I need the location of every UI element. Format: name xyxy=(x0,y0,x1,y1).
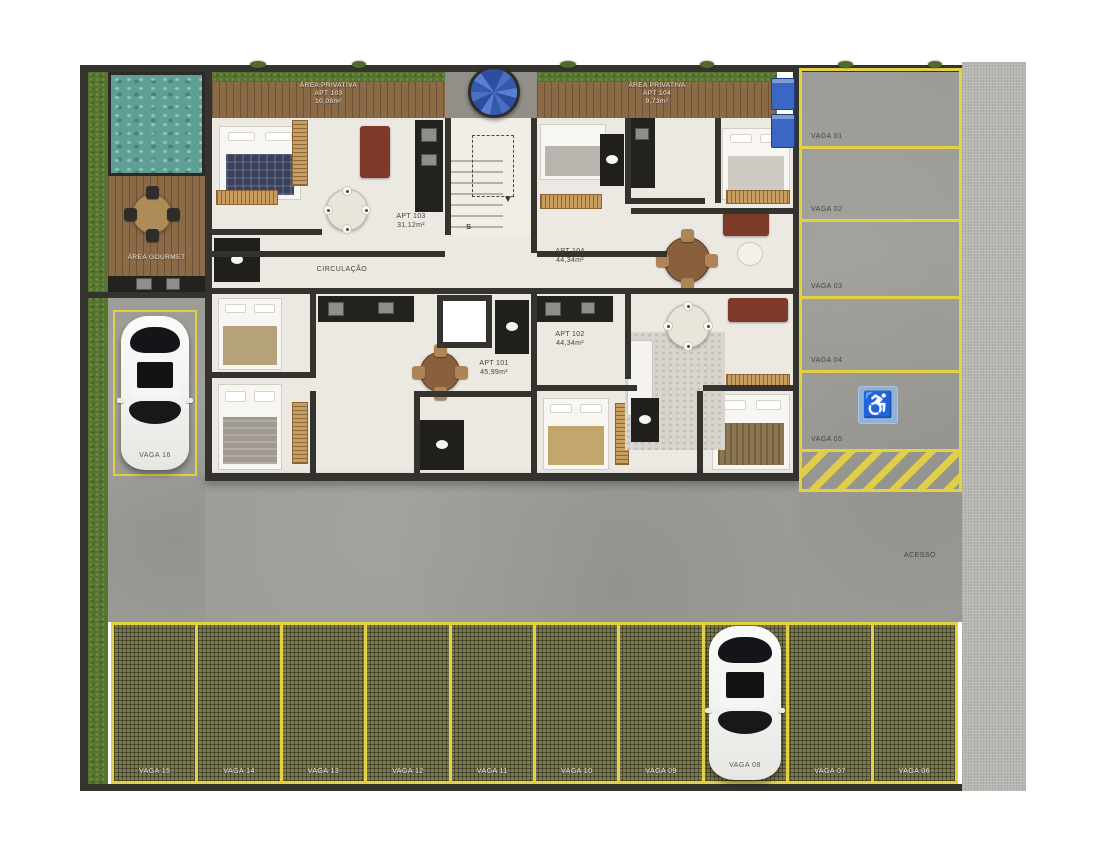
pillow xyxy=(265,132,292,141)
building-wall-left xyxy=(205,65,212,481)
bathroom xyxy=(420,420,464,470)
kitchen-counter xyxy=(631,118,655,188)
unit-area: 31,12m² xyxy=(397,221,425,230)
chair xyxy=(681,229,694,242)
dining-table xyxy=(666,304,710,348)
private-area-size: 10,08m² xyxy=(315,98,342,106)
blanket xyxy=(226,154,295,194)
wall xyxy=(212,288,800,294)
toilet xyxy=(506,322,518,331)
apartment-101-label: APT 101 45,99m² xyxy=(462,359,526,378)
blanket xyxy=(223,326,276,365)
pillow xyxy=(225,304,246,313)
plate xyxy=(323,205,333,215)
boundary-wall-bottom xyxy=(80,784,962,791)
toilet xyxy=(606,155,618,164)
floor-plan-canvas: ÁREA GOURMET ÁREA PRIVATIVA APT 103 10,0… xyxy=(0,0,1098,844)
parking-spot-vaga-12: VAGA 12 xyxy=(367,625,451,781)
stairs-label: S xyxy=(466,222,471,231)
gourmet-deck: ÁREA GOURMET xyxy=(108,176,205,292)
pillow xyxy=(580,404,602,413)
apartment-103-label: APT 103 31,12m² xyxy=(381,212,441,231)
wardrobe xyxy=(540,194,602,209)
chair xyxy=(146,186,159,199)
balcony-apt-104: ÁREA PRIVATIVA APT 104 9,73m² xyxy=(537,72,777,118)
water-tank-icon xyxy=(468,66,520,118)
balcony-apt-103: ÁREA PRIVATIVA APT 103 10,08m² xyxy=(212,72,445,118)
unit-area: 45,99m² xyxy=(480,368,508,377)
parking-spot-vaga-02: VAGA 02 xyxy=(799,146,962,222)
wall xyxy=(80,292,207,298)
wall xyxy=(631,208,793,214)
shrub xyxy=(352,61,366,68)
parking-spot-label: VAGA 08 xyxy=(709,762,781,769)
pillow xyxy=(254,391,275,402)
stove xyxy=(328,302,344,316)
blanket xyxy=(728,156,785,195)
recycle-bin xyxy=(771,114,795,148)
recycle-bin xyxy=(771,78,795,110)
wall xyxy=(212,229,322,235)
bathroom xyxy=(214,238,260,282)
gravel-walkway xyxy=(962,62,1026,791)
bed xyxy=(219,126,301,200)
blanket xyxy=(545,146,600,176)
wardrobe xyxy=(292,402,308,464)
wall xyxy=(625,198,705,204)
pillow xyxy=(550,404,572,413)
bed xyxy=(543,398,609,470)
wall xyxy=(625,294,631,379)
wall xyxy=(310,391,316,473)
private-area-title: ÁREA PRIVATIVA xyxy=(300,82,357,90)
parking-row-bottom: VAGA 15 VAGA 14 VAGA 13 VAGA 12 VAGA 11 … xyxy=(111,622,958,784)
kitchen-counter xyxy=(318,296,414,322)
grass-strip-left xyxy=(88,72,108,784)
wall xyxy=(703,385,793,391)
parking-spot-label: VAGA 03 xyxy=(811,283,842,290)
shrub xyxy=(700,61,714,68)
plate xyxy=(342,186,352,196)
chair xyxy=(705,254,718,267)
unit-name: APT 104 xyxy=(555,247,584,256)
chair xyxy=(412,366,425,379)
shrub xyxy=(928,61,942,68)
bed xyxy=(218,298,282,370)
plate xyxy=(342,224,352,234)
stairwell: ▼ S xyxy=(451,118,531,235)
parking-spot-label: VAGA 16 xyxy=(121,452,189,459)
car-sunroof xyxy=(726,672,763,698)
shrub xyxy=(560,61,576,68)
gourmet-counter xyxy=(108,276,205,292)
boundary-wall-left xyxy=(80,65,88,791)
building-wall-bottom xyxy=(205,473,800,481)
wall xyxy=(310,294,316,372)
parking-spot-vaga-10: VAGA 10 xyxy=(536,625,620,781)
pillow xyxy=(730,134,752,143)
parking-spot-label: VAGA 10 xyxy=(536,768,617,775)
car: VAGA 16 xyxy=(121,316,189,470)
bathroom xyxy=(600,134,624,186)
chair xyxy=(167,208,180,221)
car-rear-window xyxy=(130,327,180,353)
bed xyxy=(218,384,282,470)
parking-spot-vaga-03: VAGA 03 xyxy=(799,219,962,299)
wall xyxy=(697,391,703,473)
parking-spot-label: VAGA 09 xyxy=(620,768,701,775)
parking-spot-vaga-07: VAGA 07 xyxy=(789,625,873,781)
unit-area: 44,34m² xyxy=(556,339,584,348)
car: VAGA 08 xyxy=(709,626,781,780)
wall xyxy=(212,251,445,257)
circulation-label: CIRCULAÇÃO xyxy=(297,266,387,273)
private-area-apt-103-label: ÁREA PRIVATIVA APT 103 10,08m² xyxy=(212,72,445,118)
pillow xyxy=(756,400,782,410)
dining-table xyxy=(664,237,710,283)
plate xyxy=(361,205,371,215)
sink xyxy=(581,302,595,314)
car-sunroof xyxy=(137,362,172,388)
parking-spot-vaga-04: VAGA 04 xyxy=(799,296,962,373)
dining-table xyxy=(420,352,460,392)
sink-appliance xyxy=(166,278,180,290)
plate xyxy=(683,301,693,311)
car-mirror xyxy=(186,398,193,403)
chair xyxy=(146,229,159,242)
car-mirror xyxy=(705,708,712,713)
apartment-104-label: APT 104 44,34m² xyxy=(539,247,601,266)
wardrobe xyxy=(216,190,278,205)
parking-spot-vaga-09: VAGA 09 xyxy=(620,625,704,781)
driveway-main xyxy=(205,481,799,622)
parking-spot-label: VAGA 14 xyxy=(198,768,279,775)
wall xyxy=(625,118,631,203)
parking-spot-label: VAGA 01 xyxy=(811,133,842,140)
parking-spot-vaga-14: VAGA 14 xyxy=(198,625,282,781)
dining-table xyxy=(326,189,368,231)
armchair xyxy=(737,242,763,266)
stove xyxy=(421,128,437,142)
wall xyxy=(531,118,537,253)
stairs-down-arrow-icon: ▼ xyxy=(503,194,513,205)
parking-spot-vaga-15: VAGA 15 xyxy=(114,625,198,781)
elevator-shaft xyxy=(437,295,492,348)
sofa xyxy=(723,212,769,236)
bathroom xyxy=(495,300,529,354)
parking-spot-label: VAGA 13 xyxy=(283,768,364,775)
wall xyxy=(537,385,637,391)
parking-spot-label: VAGA 11 xyxy=(452,768,533,775)
grill-appliance xyxy=(136,278,152,290)
private-area-title: ÁREA PRIVATIVA xyxy=(628,82,685,90)
blanket xyxy=(223,417,276,464)
blanket xyxy=(718,423,783,464)
parking-spot-label: VAGA 06 xyxy=(874,768,955,775)
parking-spot-vaga-06: VAGA 06 xyxy=(874,625,955,781)
parking-spot-label: VAGA 04 xyxy=(811,357,842,364)
gourmet-table xyxy=(132,194,172,234)
swimming-pool xyxy=(108,72,205,176)
toilet xyxy=(436,440,448,449)
car-rear-window xyxy=(718,637,771,663)
plate xyxy=(683,341,693,351)
chair xyxy=(124,208,137,221)
unit-name: APT 103 xyxy=(396,212,425,221)
pillow xyxy=(254,304,275,313)
access-label: ACESSO xyxy=(888,552,952,559)
private-area-size: 9,73m² xyxy=(646,98,669,106)
wall xyxy=(715,118,721,203)
kitchen-counter xyxy=(537,296,613,322)
sink xyxy=(421,154,437,166)
shrub xyxy=(838,61,853,68)
accessible-parking-icon: ♿ xyxy=(858,386,898,424)
apartment-102-label: APT 102 44,34m² xyxy=(539,330,601,349)
sink xyxy=(635,128,649,140)
wall xyxy=(212,372,316,378)
kitchen-counter xyxy=(415,120,443,212)
sofa xyxy=(360,126,390,178)
shrub xyxy=(250,61,266,68)
stair-direction-path xyxy=(472,135,514,197)
private-area-apt-104-label: ÁREA PRIVATIVA APT 104 9,73m² xyxy=(537,72,777,118)
toilet xyxy=(639,415,651,424)
parking-spot-vaga-13: VAGA 13 xyxy=(283,625,367,781)
wall xyxy=(445,118,451,235)
bed xyxy=(540,124,606,180)
parking-spot-vaga-01: VAGA 01 xyxy=(799,68,962,149)
pillow xyxy=(228,132,255,141)
blanket xyxy=(548,426,603,465)
stove xyxy=(545,302,561,316)
unit-area: 44,34m² xyxy=(556,256,584,265)
car-mirror xyxy=(117,398,124,403)
wardrobe xyxy=(292,120,308,186)
pillow xyxy=(225,391,246,402)
unit-name: APT 102 xyxy=(555,330,584,339)
wall xyxy=(414,391,420,473)
unit-name: APT 101 xyxy=(479,359,508,368)
plate xyxy=(663,321,673,331)
bathroom xyxy=(631,398,659,442)
wardrobe xyxy=(726,190,790,204)
parking-spot-label: VAGA 15 xyxy=(114,768,195,775)
parking-spot-label: VAGA 07 xyxy=(789,768,870,775)
plate xyxy=(703,321,713,331)
sink xyxy=(378,302,394,314)
car-mirror xyxy=(778,708,785,713)
sofa xyxy=(728,298,788,322)
wall xyxy=(414,391,531,397)
no-parking-hatch-zone xyxy=(799,449,962,492)
parking-spot-label: VAGA 12 xyxy=(367,768,448,775)
parking-spot-vaga-11: VAGA 11 xyxy=(452,625,536,781)
parking-spot-label: VAGA 05 xyxy=(811,436,842,443)
gourmet-area-label: ÁREA GOURMET xyxy=(108,254,205,261)
parking-spot-label: VAGA 02 xyxy=(811,206,842,213)
wall xyxy=(531,294,537,473)
